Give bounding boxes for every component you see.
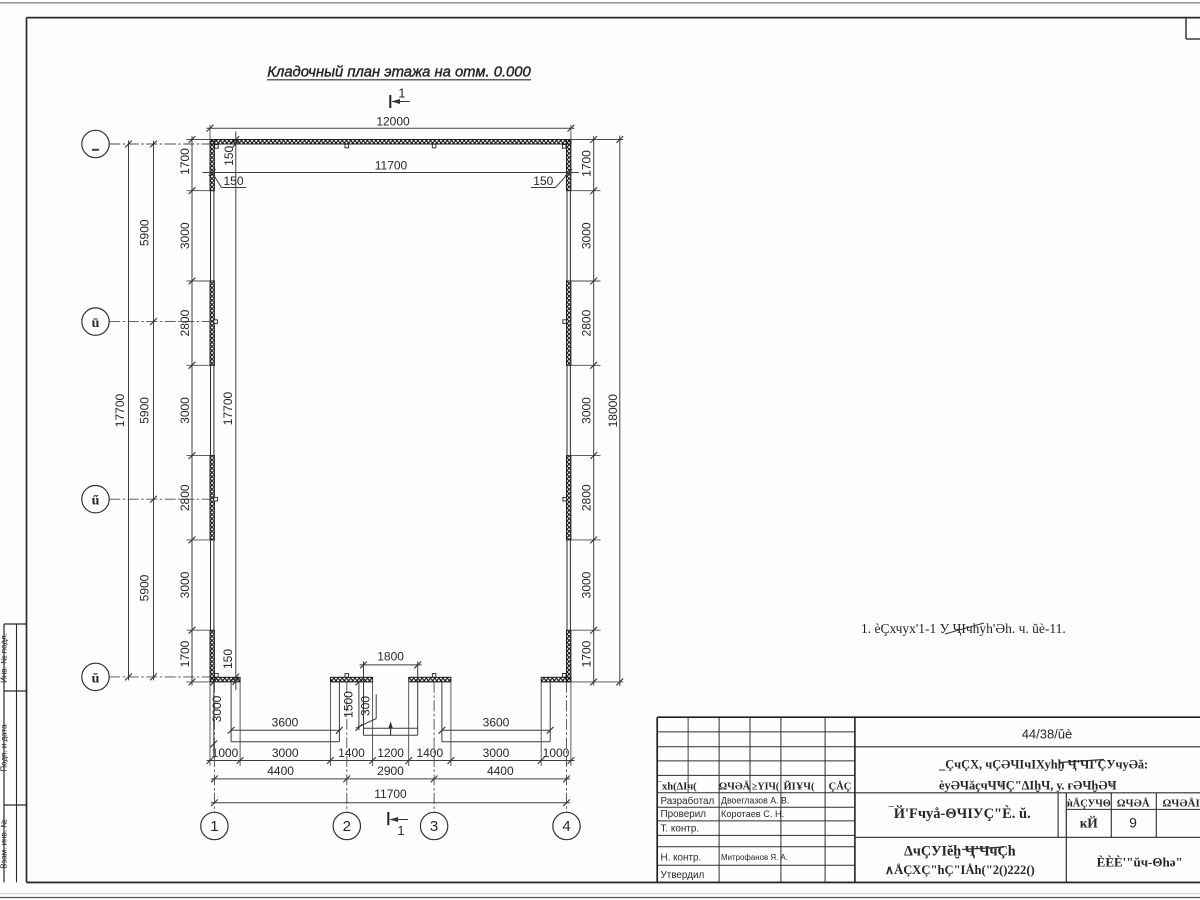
svg-text:5900: 5900 [138,574,152,601]
svg-text:_ÇчÇХ, чÇӘЧIчIХуhḫ Ҷ'ЧI'ÇУчуӘă: _ÇчÇХ, чÇӘЧIчIХуhḫ Ҷ'ЧI'ÇУчуӘă: [938,758,1148,772]
svg-text:2800: 2800 [580,484,594,511]
svg-text:2800: 2800 [178,309,192,336]
svg-text:2900: 2900 [377,764,404,778]
svg-text:ÈÈÈ'"ŭч-Θhә": ÈÈÈ'"ŭч-Θhә" [1097,855,1183,870]
svg-text:1800: 1800 [377,649,404,663]
svg-text:3000: 3000 [272,746,299,760]
svg-text:Разработал: Разработал [661,796,715,807]
svg-text:Двоеглазов А. В.: Двоеглазов А. В. [721,796,789,806]
svg-text:Проверил: Проверил [661,809,707,820]
svg-text:3600: 3600 [483,715,510,729]
svg-text:3000: 3000 [178,397,192,424]
svg-text:ЙIҰЧ(: ЙIҰЧ( [783,781,815,793]
svg-text:≥YIЧ(: ≥YIЧ( [752,782,780,793]
svg-text:3000: 3000 [178,222,192,249]
svg-text:300: 300 [359,696,373,716]
svg-text:1000: 1000 [543,746,570,760]
svg-text:11700: 11700 [374,787,407,801]
svg-text:1700: 1700 [178,640,192,667]
svg-text:Н. контр.: Н. контр. [661,853,702,864]
svg-text:5900: 5900 [138,219,152,246]
svg-text:Кладочный план этажа на отм. 0: Кладочный план этажа на отм. 0.000 [267,64,531,80]
svg-text:2: 2 [343,818,351,835]
svg-text:150: 150 [221,649,235,669]
svg-text:Т. контр.: Т. контр. [661,824,700,835]
svg-text:‾xh(ΔIч(: ‾xh(ΔIч( [658,781,698,793]
svg-text:3000: 3000 [178,571,192,598]
svg-text:1700: 1700 [580,150,594,177]
svg-text:4400: 4400 [267,764,294,778]
svg-text:150: 150 [533,174,553,188]
svg-text:1200: 1200 [377,746,404,760]
svg-text:ΩЧӘÅIУ: ΩЧӘÅIУ [1163,797,1200,809]
svg-text:Митрофанов Я. А.: Митрофанов Я. А. [721,853,788,862]
svg-text:11700: 11700 [375,159,408,173]
svg-text:1700: 1700 [580,640,594,667]
svg-text:150: 150 [223,174,243,188]
svg-text:5900: 5900 [138,397,152,424]
svg-text:3000: 3000 [580,397,594,424]
svg-text:9: 9 [1129,815,1137,831]
svg-text:3000: 3000 [210,695,224,722]
svg-text:150: 150 [222,145,236,165]
svg-text:∧ÅÇХÇ"hÇ"IÅh("2()222(): ∧ÅÇХÇ"hÇ"IÅh("2()222() [885,863,1035,877]
svg-text:1700: 1700 [178,148,192,175]
svg-text:3000: 3000 [483,746,510,760]
svg-text:3000: 3000 [580,222,594,249]
svg-text:18000: 18000 [606,394,620,428]
svg-text:1: 1 [398,87,405,101]
svg-text:3000: 3000 [580,571,594,598]
svg-text:ÇÅÇ: ÇÅÇ [829,781,852,793]
svg-text:1400: 1400 [416,746,443,760]
svg-text:4: 4 [562,818,570,835]
svg-text:4400: 4400 [487,764,514,778]
svg-text:1000: 1000 [212,746,239,760]
svg-text:ĸЙ: ĸЙ [1080,815,1099,830]
svg-text:Взам. инв. №: Взам. инв. № [0,819,9,869]
svg-text:2800: 2800 [178,484,192,511]
svg-text:2800: 2800 [580,309,594,336]
svg-text:44/38/ŭè: 44/38/ŭè [1022,727,1073,742]
svg-text:Утвердил: Утвердил [661,870,705,881]
svg-text:ű: ű [92,494,100,509]
svg-text:1400: 1400 [338,746,365,760]
svg-text:ŭ: ŭ [92,671,100,686]
svg-text:èуӘЧăçчЧҸÇ"ΔIḫЧ, у. ғӘЧḫӘҸ: èуӘЧăçчЧҸÇ"ΔIḫЧ, у. ғӘЧḫӘҸ [939,778,1117,792]
svg-text:3: 3 [430,818,438,835]
svg-text:ѝÅÇУЧΘ: ѝÅÇУЧΘ [1067,797,1111,809]
svg-text:3600: 3600 [272,715,299,729]
svg-text:ΔчÇУIĕḫ Ҷ'ЧчÇh: ΔчÇУIĕḫ Ҷ'ЧчÇh [904,844,1016,860]
svg-text:12000: 12000 [376,114,410,128]
svg-text:‾Й'Fчуå-ΘЧIУÇ"È. ŭ.: ‾Й'Fчуå-ΘЧIУÇ"È. ŭ. [888,805,1031,822]
svg-text:Коротаев С. Н.: Коротаев С. Н. [721,809,784,819]
svg-text:17700: 17700 [113,393,127,427]
svg-text:ū: ū [92,316,100,331]
svg-text:1: 1 [210,818,218,835]
svg-text:Подп. и дата: Подп. и дата [0,724,9,772]
svg-text:Инв. № подл.: Инв. № подл. [0,633,9,683]
svg-text:ΩЧӘÅ: ΩЧӘÅ [1117,797,1150,809]
svg-text:1: 1 [398,824,405,838]
svg-text:ΩЧӘÅ: ΩЧӘÅ [719,781,751,793]
svg-text:17700: 17700 [221,391,235,425]
svg-text:1500: 1500 [341,691,355,718]
